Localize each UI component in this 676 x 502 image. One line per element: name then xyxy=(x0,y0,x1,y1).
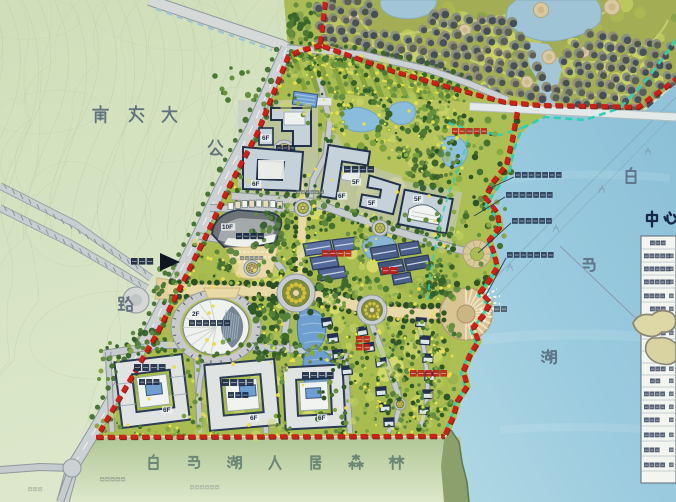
svg-text:5F: 5F xyxy=(352,179,360,186)
svg-text:2F: 2F xyxy=(192,311,200,318)
svg-text:5F: 5F xyxy=(368,200,376,207)
svg-text:5F: 5F xyxy=(414,196,422,203)
svg-text:6F: 6F xyxy=(250,415,258,422)
svg-text:10F: 10F xyxy=(222,224,233,231)
svg-text:6F: 6F xyxy=(163,407,171,414)
svg-text:6F: 6F xyxy=(338,193,346,200)
svg-text:6F: 6F xyxy=(262,135,270,142)
svg-text:6F: 6F xyxy=(252,181,260,188)
svg-text:6F: 6F xyxy=(318,415,326,422)
